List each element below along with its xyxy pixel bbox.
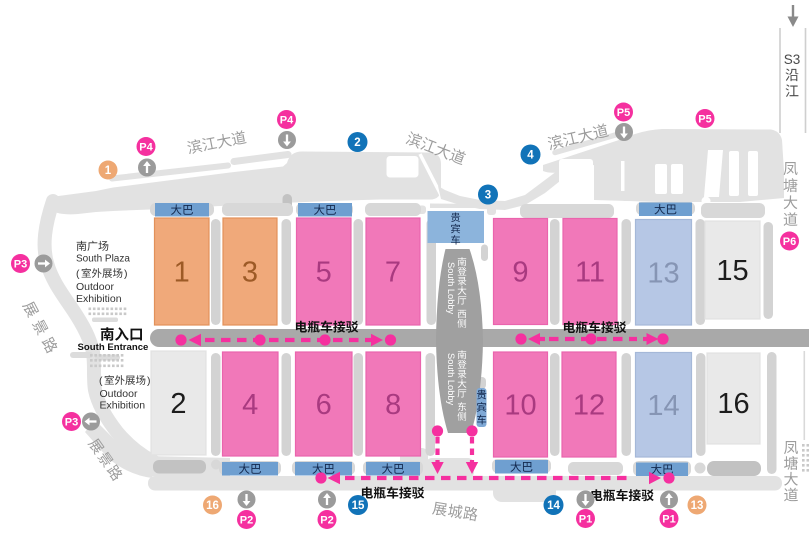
svg-text:3: 3	[242, 257, 258, 289]
svg-text:P1: P1	[662, 513, 675, 525]
svg-text:8: 8	[385, 389, 401, 421]
svg-text:1: 1	[105, 165, 112, 177]
svg-text:12: 12	[573, 390, 605, 422]
svg-text:P3: P3	[65, 416, 78, 428]
svg-text:P5: P5	[617, 107, 630, 119]
svg-text:5: 5	[316, 257, 332, 289]
svg-text:P2: P2	[240, 514, 253, 526]
svg-text:4: 4	[242, 389, 258, 421]
svg-text:2: 2	[170, 388, 186, 420]
svg-text:3: 3	[485, 190, 491, 202]
svg-text:P6: P6	[783, 236, 796, 248]
svg-text:4: 4	[527, 150, 534, 162]
svg-text:(: (	[76, 268, 80, 280]
svg-text:(: (	[99, 375, 103, 387]
svg-text:South Lobby: South Lobby	[446, 262, 456, 315]
svg-text:Exhibition: Exhibition	[100, 400, 146, 412]
svg-text:10: 10	[504, 390, 536, 422]
svg-text:): )	[124, 268, 128, 280]
svg-text:P4: P4	[139, 141, 153, 153]
svg-text:South Plaza: South Plaza	[76, 254, 130, 265]
svg-text:15: 15	[716, 255, 748, 287]
svg-text:P3: P3	[14, 258, 27, 270]
svg-text:S3: S3	[784, 52, 801, 67]
svg-text:1: 1	[174, 257, 190, 289]
svg-text:Outdoor: Outdoor	[76, 281, 114, 293]
svg-text:P4: P4	[280, 114, 294, 126]
svg-text:P2: P2	[320, 514, 333, 526]
svg-text:2: 2	[354, 137, 360, 149]
svg-text:6: 6	[316, 389, 332, 421]
svg-text:South Entrance: South Entrance	[78, 342, 149, 353]
svg-text:South Lobby: South Lobby	[446, 353, 456, 406]
svg-text:): )	[147, 375, 151, 387]
svg-text:7: 7	[385, 257, 401, 289]
svg-text:9: 9	[512, 257, 528, 289]
svg-text:Exhibition: Exhibition	[76, 293, 122, 305]
svg-text:P5: P5	[698, 113, 711, 125]
svg-text:15: 15	[352, 500, 365, 512]
svg-text:16: 16	[717, 388, 749, 420]
svg-text:13: 13	[647, 257, 679, 289]
svg-text:14: 14	[547, 500, 560, 512]
svg-text:P1: P1	[579, 513, 592, 525]
svg-text:11: 11	[575, 257, 605, 289]
svg-text:Outdoor: Outdoor	[100, 388, 138, 400]
svg-text:16: 16	[206, 500, 219, 512]
svg-text:14: 14	[647, 390, 679, 422]
svg-text:13: 13	[691, 500, 704, 512]
